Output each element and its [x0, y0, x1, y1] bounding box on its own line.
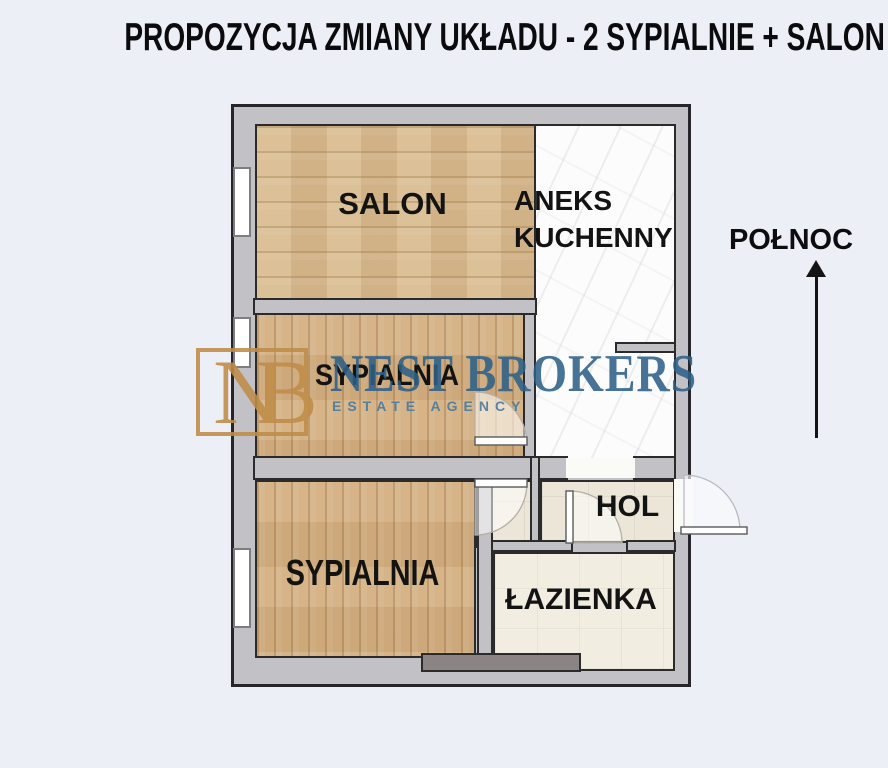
- passage-opening: [566, 458, 635, 478]
- floor-plan-page: PROPOZYCJA ZMIANY UKŁADU - 2 SYPIALNIE +…: [0, 0, 888, 768]
- wall-segment: [253, 456, 568, 480]
- wall-segment: [633, 456, 676, 480]
- bedroom2-label: SYPIALNIA: [274, 554, 451, 592]
- agency-watermark: NB NEST BROKERS ESTATE AGENCY: [190, 340, 710, 432]
- wall-segment: [626, 540, 676, 552]
- wall-segment: [477, 480, 493, 665]
- agency-tagline: ESTATE AGENCY: [332, 398, 526, 414]
- built-in-fixture: [421, 653, 581, 672]
- bathroom-label: ŁAZIENKA: [490, 584, 672, 616]
- north-label: POŁNOC: [716, 224, 866, 257]
- wall-segment: [481, 540, 573, 552]
- bedroom2-window: [233, 548, 251, 628]
- wall-segment: [530, 456, 540, 548]
- monogram-badge: NB: [196, 348, 308, 436]
- salon-window: [233, 167, 251, 237]
- monogram-text: NB: [209, 352, 295, 432]
- wall-segment: [253, 298, 537, 315]
- agency-name: NEST BROKERS: [330, 344, 697, 404]
- salon-label: SALON: [252, 188, 533, 221]
- north-arrow-line: [815, 274, 818, 438]
- hall-label: HOL: [560, 491, 695, 523]
- kitchen-label: ANEKS KUCHENNY: [514, 182, 698, 256]
- page-title: PROPOZYCJA ZMIANY UKŁADU - 2 SYPIALNIE +…: [124, 16, 763, 60]
